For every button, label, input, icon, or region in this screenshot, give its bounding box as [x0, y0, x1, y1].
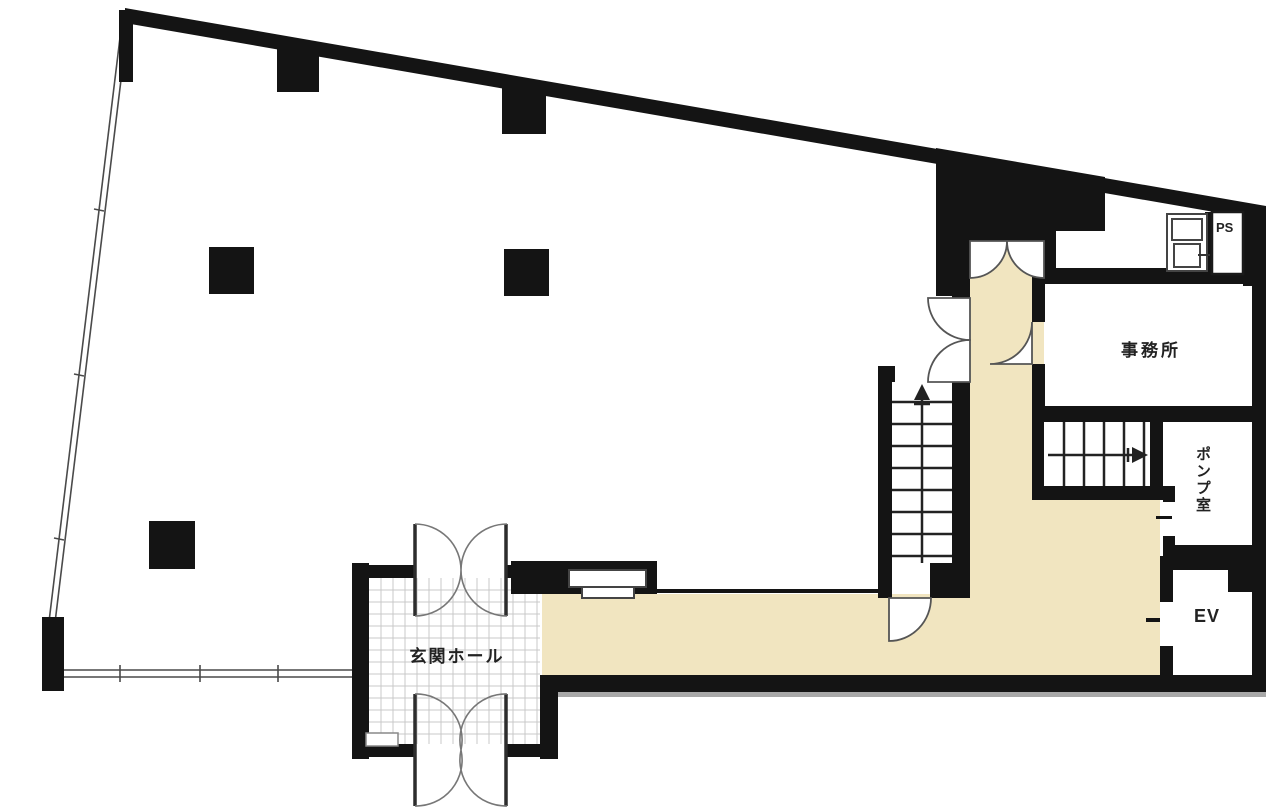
upper-stair-bottom-wall: [1032, 486, 1163, 500]
floor-plan: 事務所 ポンプ室 EV PS 玄関ホール: [0, 0, 1280, 811]
elevator-label: EV: [1194, 606, 1220, 627]
office-label: 事務所: [1096, 336, 1206, 361]
pump-door-tick: [1156, 516, 1172, 519]
pump-room-label: ポンプ室: [1192, 446, 1213, 514]
stair-right-wall: [952, 382, 970, 566]
column: [504, 249, 549, 296]
entrance-hall-label: 玄関ホール: [382, 642, 532, 667]
entrance-left-wall: [352, 563, 369, 759]
column: [209, 247, 254, 294]
corridor-top-line: [655, 589, 880, 593]
ev-corner-notch: [1228, 560, 1254, 592]
entry-step: [569, 570, 646, 587]
column: [502, 84, 546, 134]
bottom-wall: [545, 675, 1266, 692]
bottom-wall-shadow: [545, 692, 1266, 697]
ev-door-tick: [1146, 618, 1160, 622]
top-left-stub: [119, 10, 133, 82]
stair-left-wall: [878, 366, 892, 598]
office-bottom-wall: [1032, 406, 1266, 422]
column: [277, 44, 319, 92]
window-walls: [43, 13, 357, 682]
floor-plan-drawing: [0, 0, 1280, 811]
bottom-left-corner-block: [42, 617, 64, 691]
upper-staircase: [1044, 422, 1150, 486]
right-wall: [1252, 206, 1266, 692]
stair-bottom-column: [930, 563, 970, 598]
small-step: [366, 733, 398, 746]
column: [149, 521, 195, 569]
pipe-shaft-label: PS: [1216, 220, 1233, 235]
